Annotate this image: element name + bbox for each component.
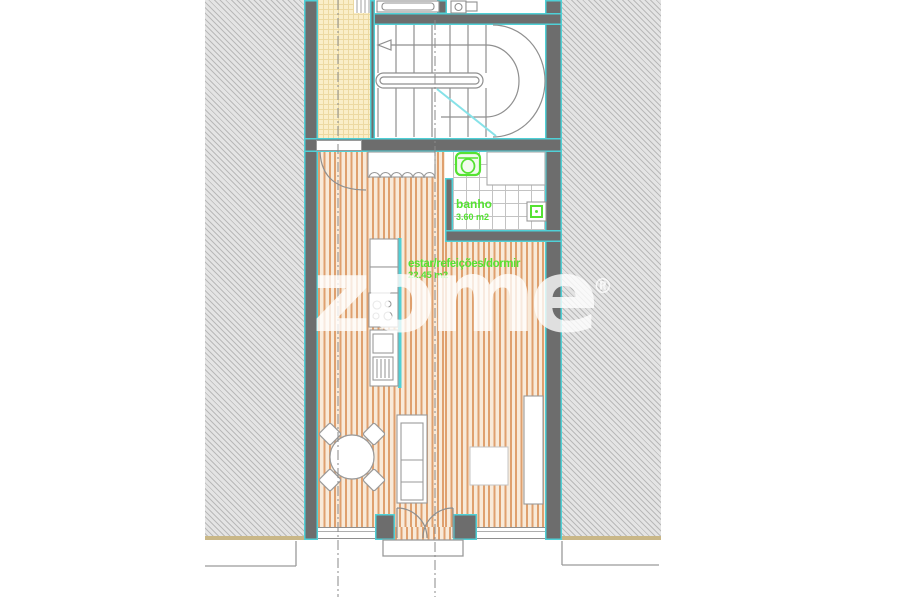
side-table bbox=[470, 447, 508, 485]
entry-step bbox=[383, 540, 463, 556]
toilet-icon bbox=[456, 153, 480, 175]
stair-treads-upper bbox=[378, 25, 486, 73]
exterior-ground-lines bbox=[205, 540, 659, 566]
zome-watermark: zome® bbox=[312, 246, 613, 348]
wall-console bbox=[524, 396, 543, 504]
upper-floor-fixtures bbox=[357, 0, 477, 13]
toilet-top-icon bbox=[451, 1, 477, 13]
stair-railing-outer bbox=[376, 73, 483, 88]
upper-stair-treads bbox=[357, 0, 369, 13]
bathroom-area: 3.60 m2 bbox=[456, 212, 492, 222]
dining-set bbox=[319, 423, 386, 492]
sofa bbox=[397, 415, 427, 503]
door-leaf-right bbox=[423, 508, 453, 538]
stair-turn-inner-arc bbox=[486, 45, 519, 117]
dining-table bbox=[330, 435, 374, 479]
patio-door-swing bbox=[320, 152, 366, 190]
ground-steps-right bbox=[562, 541, 659, 565]
bathroom-label: banho bbox=[456, 198, 492, 212]
floor-plan-canvas: banho 3.60 m2 estar/refeições/dormir 22.… bbox=[0, 0, 900, 597]
shower-tray bbox=[487, 152, 545, 185]
stair-treads-lower bbox=[378, 88, 486, 137]
registered-mark: ® bbox=[593, 274, 613, 298]
sink-basin-top bbox=[382, 3, 434, 10]
door-leaf-left bbox=[397, 508, 427, 538]
bathroom-label-block: banho 3.60 m2 bbox=[456, 198, 492, 222]
stair-direction-arrow bbox=[378, 40, 391, 50]
watermark-text: zome bbox=[312, 237, 593, 356]
washbasin-icon bbox=[527, 202, 546, 221]
entry-closet bbox=[368, 152, 435, 178]
ground-steps-left bbox=[205, 541, 296, 566]
stair-section-cut-line bbox=[437, 89, 496, 136]
double-entry-door bbox=[397, 508, 453, 538]
staircase bbox=[376, 25, 545, 137]
